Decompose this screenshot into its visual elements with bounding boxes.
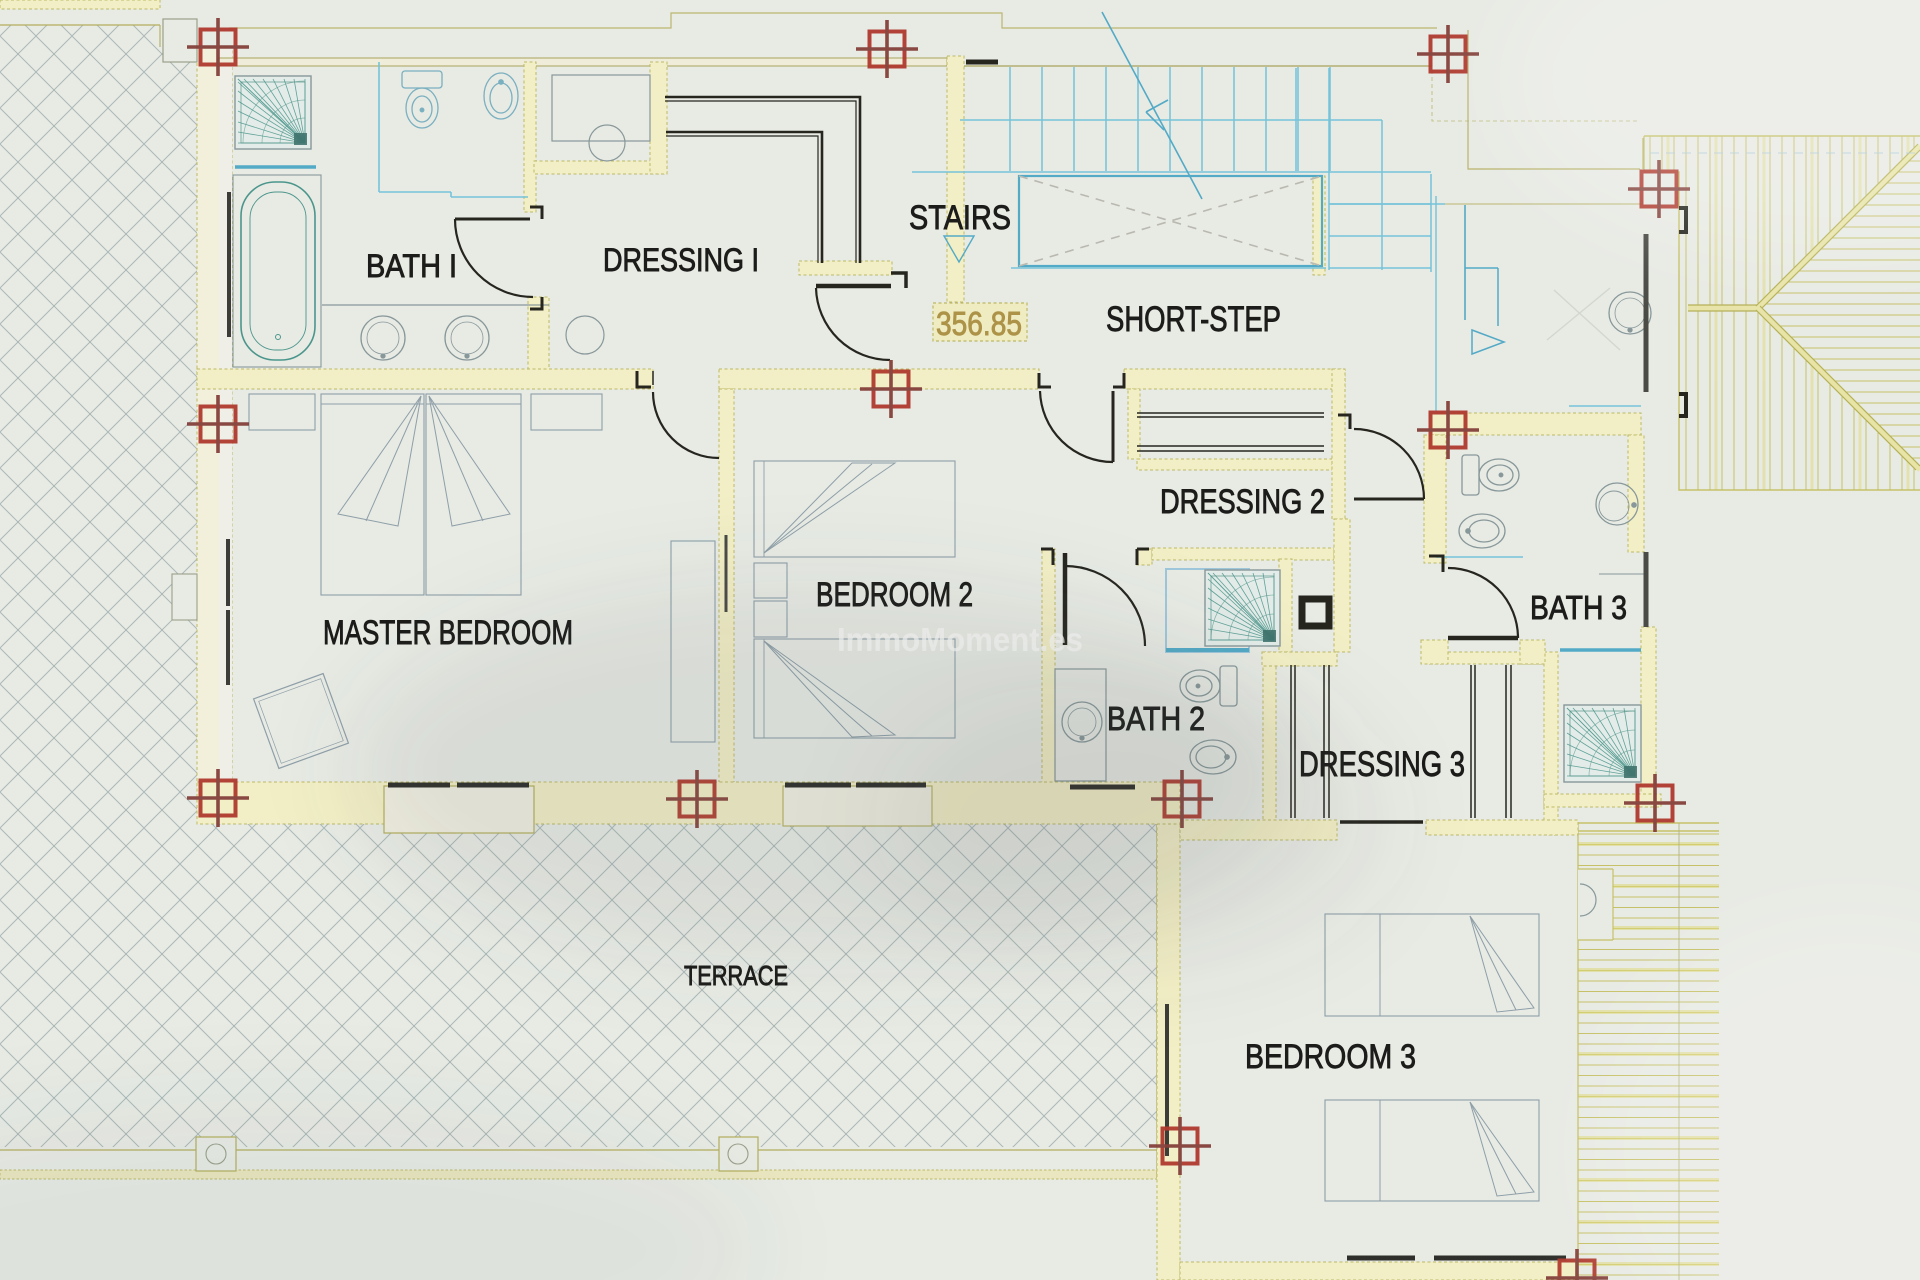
svg-text:STAIRS: STAIRS bbox=[909, 199, 1011, 237]
svg-text:BATH I: BATH I bbox=[366, 248, 457, 284]
svg-text:DRESSING 2: DRESSING 2 bbox=[1160, 483, 1325, 521]
svg-text:BATH 3: BATH 3 bbox=[1530, 589, 1627, 626]
svg-text:DRESSING I: DRESSING I bbox=[603, 242, 759, 278]
svg-text:TERRACE: TERRACE bbox=[684, 960, 788, 991]
svg-text:356.85: 356.85 bbox=[936, 305, 1022, 342]
svg-text:BEDROOM 3: BEDROOM 3 bbox=[1245, 1038, 1416, 1076]
svg-text:SHORT-STEP: SHORT-STEP bbox=[1106, 300, 1281, 339]
